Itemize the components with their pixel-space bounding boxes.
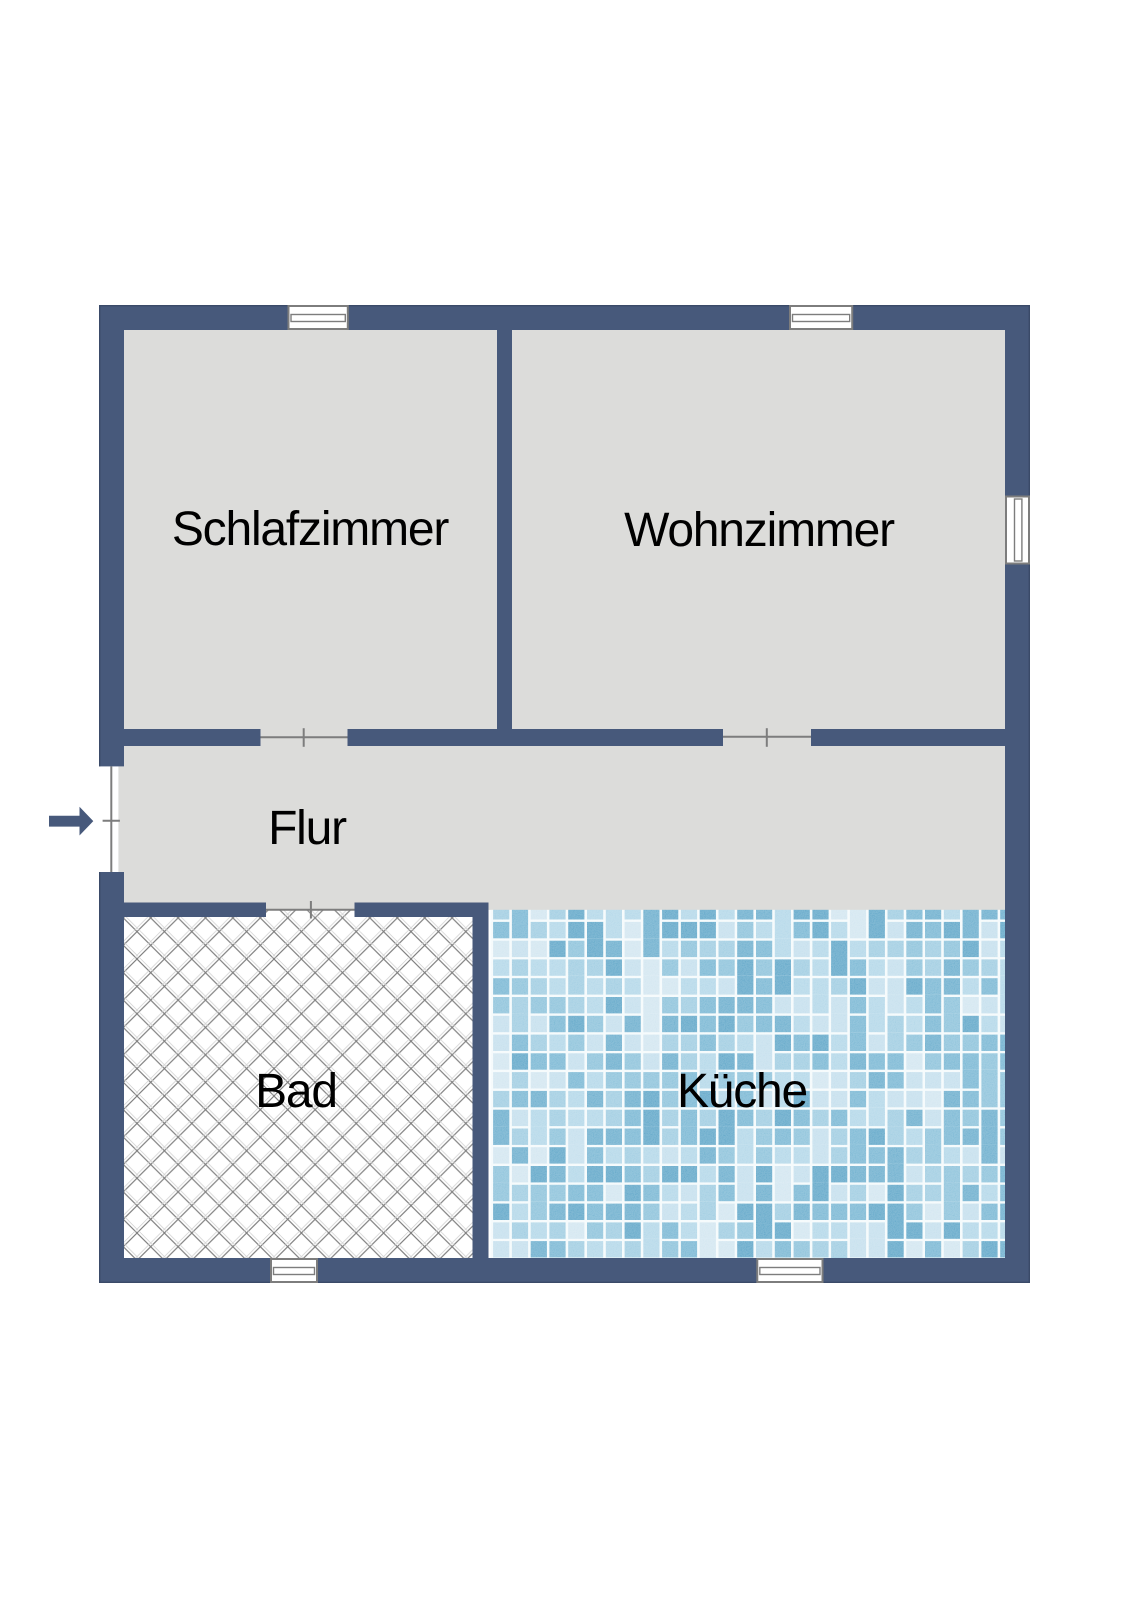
svg-text:Wohnzimmer: Wohnzimmer [624, 504, 895, 557]
svg-text:Flur: Flur [268, 802, 347, 855]
svg-text:Küche: Küche [677, 1065, 807, 1118]
svg-text:Bad: Bad [255, 1065, 337, 1118]
svg-text:Schlafzimmer: Schlafzimmer [172, 503, 450, 556]
